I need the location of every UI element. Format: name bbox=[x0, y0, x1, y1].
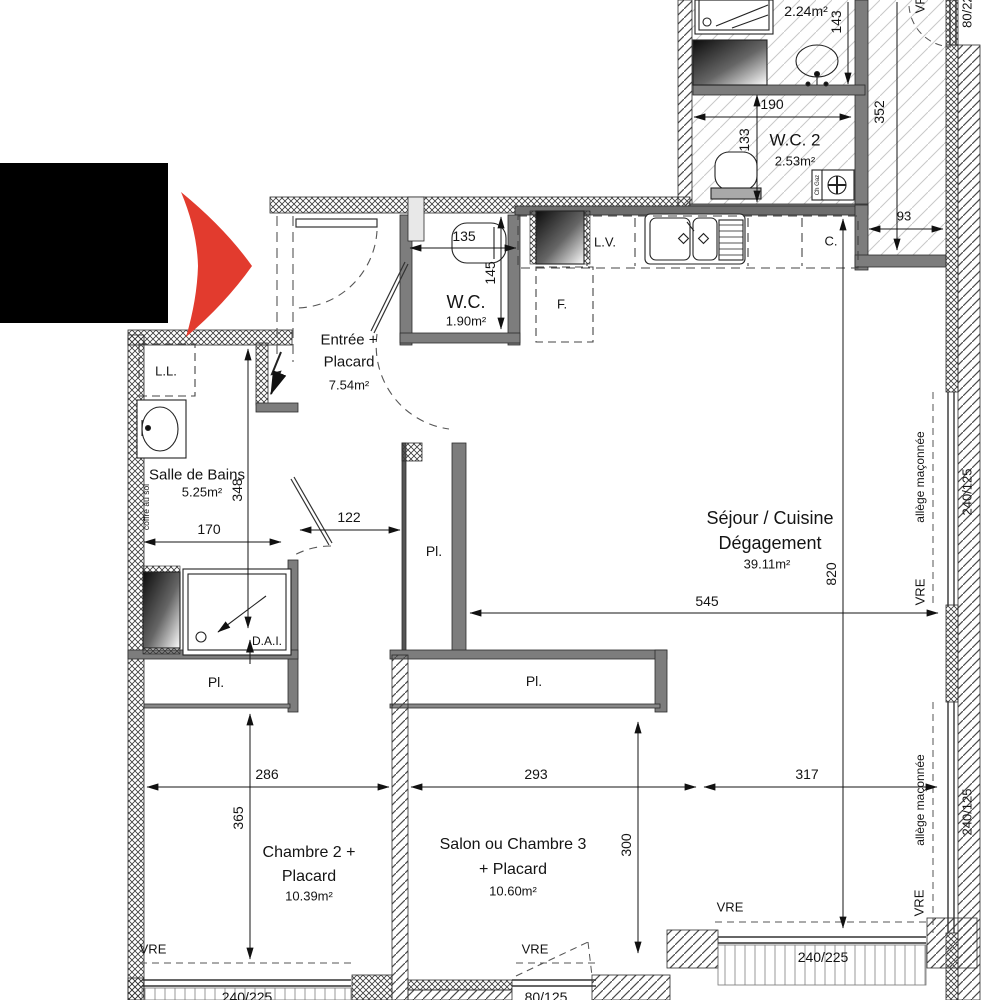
fridge-label: F. bbox=[557, 298, 567, 311]
boiler-label: Ch Gaz bbox=[815, 175, 821, 195]
window-code-240-225-bl: 240/225 bbox=[222, 990, 273, 1000]
dim-135: 135 bbox=[452, 229, 475, 243]
room-name-ch2-1: Chambre 2 + bbox=[263, 845, 356, 861]
toilet-wc2-icon bbox=[711, 152, 761, 199]
room-area-wc2: 2.53m² bbox=[775, 155, 815, 168]
room-area-salon: 10.60m² bbox=[489, 885, 537, 898]
floor-plan-page: 2.24m² 143 190 352 W.C. 2 2.53m² 133 Ch … bbox=[0, 0, 1000, 1000]
allege-label-2: allège maçonnée bbox=[914, 754, 926, 845]
dim-300: 300 bbox=[619, 833, 633, 856]
window-code-240-125-b: 240/125 bbox=[961, 789, 974, 836]
dim-145: 145 bbox=[483, 261, 497, 284]
dim-317: 317 bbox=[795, 767, 818, 781]
dim-293: 293 bbox=[524, 767, 547, 781]
bath-counter-icon bbox=[693, 40, 767, 85]
room-area-ch2: 10.39m² bbox=[285, 890, 333, 903]
room-name-salon-2: + Placard bbox=[479, 862, 547, 878]
washbasin-bath-icon bbox=[137, 400, 186, 458]
dim-93: 93 bbox=[897, 210, 911, 223]
cooker-label: C. bbox=[825, 235, 838, 248]
window-code-240-125-a: 240/125 bbox=[961, 469, 974, 516]
room-name-sejour-2: Dégagement bbox=[718, 534, 821, 552]
room-area-shower: 2.24m² bbox=[784, 4, 828, 18]
vre-label-bottom-left: VRE bbox=[140, 943, 167, 956]
kitchen-sink-icon bbox=[645, 214, 745, 264]
dai-label: D.A.I. bbox=[252, 635, 282, 647]
dim-286: 286 bbox=[255, 767, 278, 781]
dim-820: 820 bbox=[824, 562, 838, 585]
allege-label-1: allège maçonnée bbox=[914, 431, 926, 522]
dim-545: 545 bbox=[695, 594, 718, 608]
redaction-box bbox=[0, 163, 168, 323]
window-code-80-125: 80/125 bbox=[525, 990, 568, 1000]
red-location-marker bbox=[181, 192, 252, 337]
vre-label-right-1: VRE bbox=[914, 579, 927, 606]
dim-365: 365 bbox=[231, 806, 245, 829]
placard-mid-label: Pl. bbox=[426, 544, 442, 558]
dim-122: 122 bbox=[337, 510, 360, 524]
dim-190: 190 bbox=[760, 97, 783, 111]
room-name-sejour-1: Séjour / Cuisine bbox=[706, 509, 833, 527]
room-name-wc1: W.C. bbox=[447, 293, 486, 311]
tall-unit-icon bbox=[530, 211, 590, 264]
placard-salon-label: Pl. bbox=[526, 674, 542, 688]
dim-143: 143 bbox=[829, 10, 843, 33]
room-name-entree-2: Placard bbox=[324, 355, 375, 370]
room-name-entree-1: Entrée + bbox=[320, 333, 377, 348]
room-area-sejour: 39.11m² bbox=[744, 558, 791, 571]
vre-label-bottom-right: VRE bbox=[717, 901, 744, 914]
room-name-salon-1: Salon ou Chambre 3 bbox=[440, 837, 587, 853]
vre-label-top-right: VRE bbox=[914, 0, 927, 13]
vre-label-bottom-mid: VRE bbox=[522, 943, 549, 956]
dim-170: 170 bbox=[197, 522, 220, 536]
room-area-bain: 5.25m² bbox=[182, 486, 222, 499]
dishwasher-label: L.V. bbox=[594, 236, 616, 249]
electrical-panel-icon bbox=[271, 352, 281, 394]
room-name-ch2-2: Placard bbox=[282, 869, 336, 885]
window-code-240-225-br: 240/225 bbox=[798, 950, 849, 964]
dim-352: 352 bbox=[872, 100, 886, 123]
washer-label: L.L. bbox=[155, 365, 177, 378]
room-area-wc1: 1.90m² bbox=[446, 315, 486, 328]
dim-348: 348 bbox=[230, 478, 244, 501]
coffre-label: coffre au sol bbox=[142, 484, 151, 530]
shower-top-icon bbox=[695, 0, 773, 34]
window-code-80-225: 80/225 bbox=[961, 0, 974, 28]
placard-ch2-label: Pl. bbox=[208, 675, 224, 689]
room-name-wc2: W.C. 2 bbox=[769, 132, 820, 149]
dim-133: 133 bbox=[737, 128, 751, 151]
room-area-entree: 7.54m² bbox=[329, 379, 369, 392]
vre-label-right-2: VRE bbox=[913, 890, 926, 917]
